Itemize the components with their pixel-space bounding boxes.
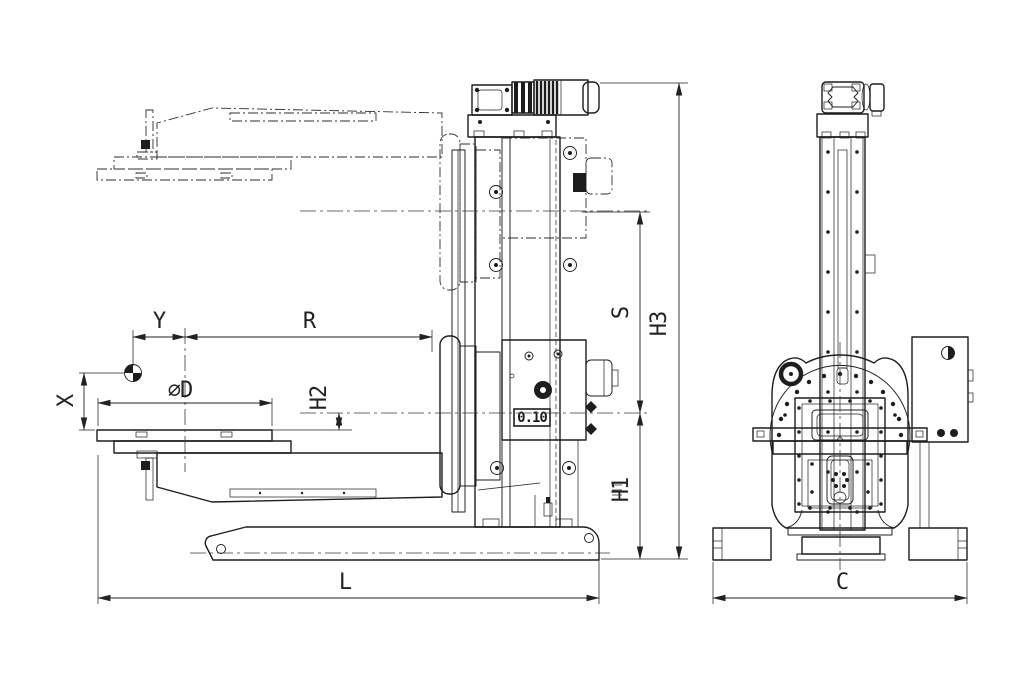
control-box <box>912 337 973 528</box>
rail-bolts <box>826 150 859 514</box>
lift-motor-front <box>817 82 884 138</box>
raised-position-phantom <box>97 108 612 290</box>
column-side <box>452 137 622 527</box>
dimension-X: X <box>54 373 124 430</box>
dim-label-s: S <box>609 307 634 319</box>
technical-drawing: 0.10 <box>0 0 1024 683</box>
center-of-gravity-icon <box>125 365 142 382</box>
dimension-L: L <box>98 455 599 604</box>
dimension-R: R <box>185 309 432 352</box>
lift-motor-side <box>468 80 599 137</box>
dim-label-y: Y <box>153 309 166 334</box>
dimension-Y: Y <box>133 309 185 366</box>
drawing-canvas: 0.10 <box>0 0 1024 683</box>
dim-label-d: ⌀D <box>168 378 193 403</box>
dimension-S: S <box>582 212 650 413</box>
dimension-H1: H1 <box>609 413 640 559</box>
dim-label-h2: H2 <box>307 386 332 411</box>
arm-table-lowered <box>97 328 442 502</box>
dim-label-h3: H3 <box>647 312 672 337</box>
dim-label-c: C <box>836 570 848 595</box>
dim-label-h1: H1 <box>609 478 634 503</box>
dimension-H2: H2 <box>272 386 352 430</box>
dim-label-l: L <box>339 570 352 595</box>
dim-label-r: R <box>303 309 317 334</box>
dim-label-x: X <box>54 393 79 407</box>
column-front <box>820 137 875 530</box>
tolerance-label: 0.10 <box>517 410 547 426</box>
rotary-flange-lowered <box>440 336 552 527</box>
base-skid-side <box>190 519 610 560</box>
